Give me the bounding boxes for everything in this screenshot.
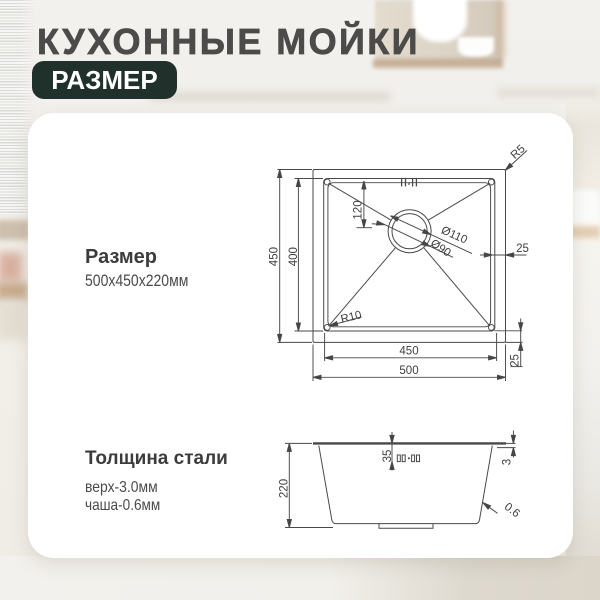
svg-text:0.6: 0.6 [502, 501, 522, 520]
svg-text:400: 400 [288, 247, 300, 266]
svg-text:3: 3 [502, 459, 514, 465]
svg-text:R5: R5 [509, 143, 528, 162]
svg-text:35: 35 [382, 450, 394, 463]
svg-text:500: 500 [399, 365, 418, 377]
svg-text:25: 25 [516, 243, 529, 255]
svg-text:Ø90: Ø90 [428, 237, 453, 259]
svg-text:120: 120 [353, 200, 365, 219]
svg-text:220: 220 [278, 479, 290, 498]
svg-text:450: 450 [399, 346, 418, 358]
svg-text:R10: R10 [340, 309, 363, 326]
svg-text:450: 450 [269, 247, 281, 266]
svg-text:25: 25 [510, 354, 522, 367]
